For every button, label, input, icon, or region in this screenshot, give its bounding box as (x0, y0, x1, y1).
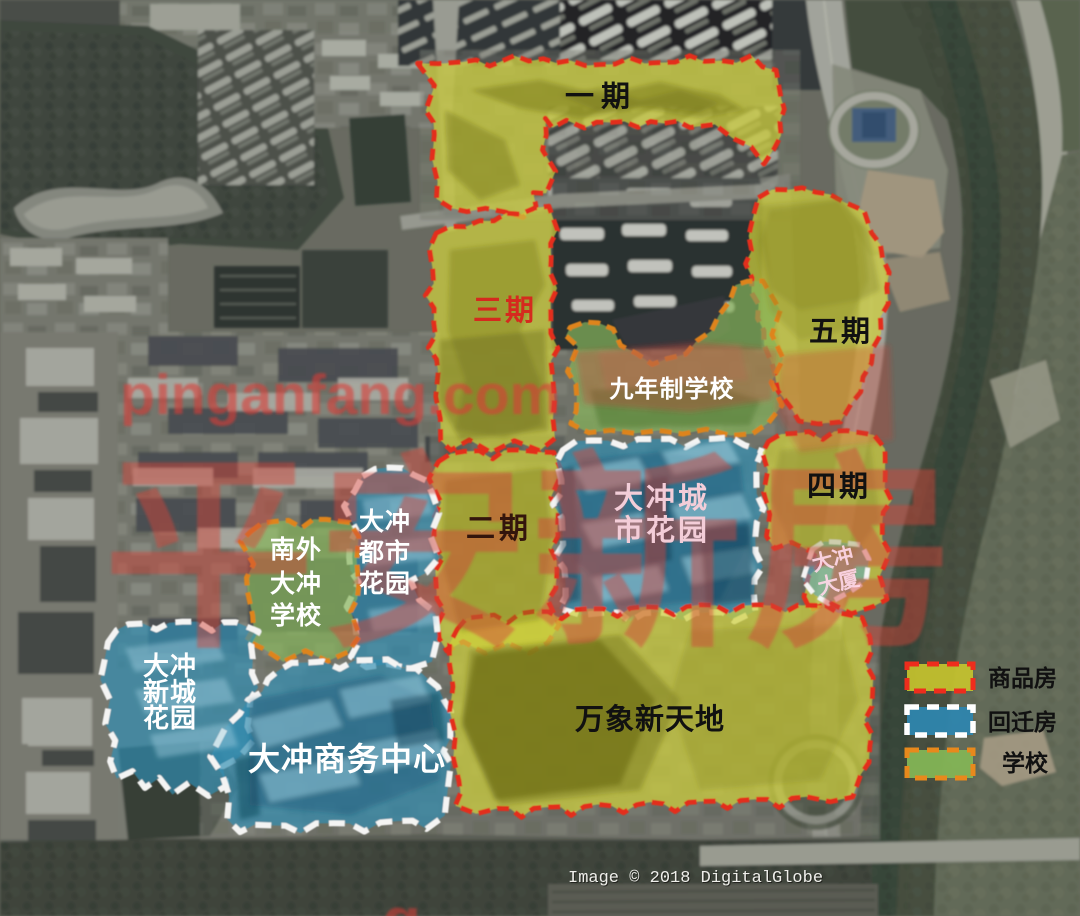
svg-text:万象新天地: 万象新天地 (575, 703, 725, 736)
svg-text:学校: 学校 (270, 601, 322, 630)
svg-text:花园: 花园 (359, 570, 411, 598)
svg-text:大冲: 大冲 (270, 570, 322, 598)
svg-text:南外: 南外 (270, 535, 322, 564)
svg-text:九年制学校: 九年制学校 (609, 375, 735, 403)
svg-text:大冲城: 大冲城 (614, 482, 710, 515)
svg-text:五期: 五期 (809, 315, 873, 348)
svg-text:学校: 学校 (1002, 750, 1049, 776)
svg-text:二期: 二期 (466, 512, 532, 545)
svg-text:四期: 四期 (807, 470, 871, 503)
svg-text:商品房: 商品房 (988, 665, 1057, 691)
svg-text:都市: 都市 (358, 538, 411, 567)
svg-text:大冲商务中心: 大冲商务中心 (248, 741, 446, 777)
svg-text:三期: 三期 (473, 294, 537, 327)
svg-text:大冲: 大冲 (359, 508, 411, 536)
svg-text:一期: 一期 (565, 80, 637, 113)
svg-text:回迁房: 回迁房 (988, 709, 1057, 735)
svg-text:Image © 2018 DigitalGlobe: Image © 2018 DigitalGlobe (568, 869, 823, 888)
svg-text:花园: 花园 (143, 703, 197, 733)
svg-text:市花园: 市花园 (614, 513, 710, 547)
